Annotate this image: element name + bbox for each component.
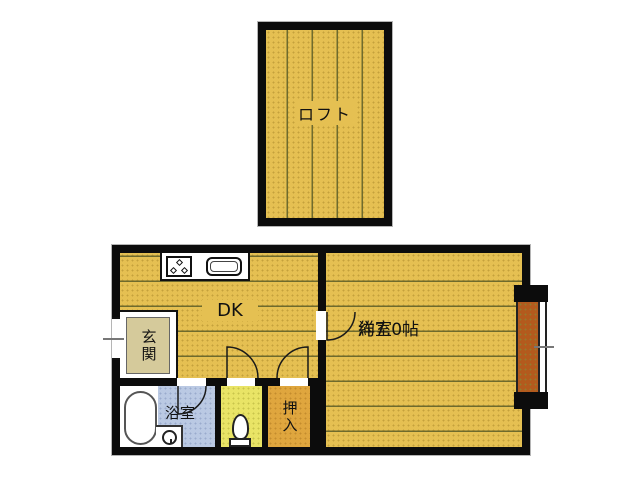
- bay-window-tick: [534, 346, 554, 348]
- loft-room: ロフト: [258, 22, 392, 226]
- main-floor: 玄関 浴室 押入: [112, 245, 530, 455]
- loft-label: ロフト: [295, 101, 355, 125]
- doorway-dk-western: [316, 311, 326, 340]
- stove-icon: [166, 256, 192, 277]
- western-room-floor: [326, 253, 522, 447]
- doorway-toilet: [227, 378, 255, 386]
- wall-dk-western: [318, 253, 326, 447]
- wall-closet-western: [310, 386, 318, 447]
- washer-pan: [156, 425, 183, 447]
- entry-door-tick: [103, 338, 124, 340]
- drain-icon: [162, 430, 177, 445]
- burner-icon: [170, 267, 177, 274]
- drain-slit: [170, 439, 172, 444]
- toilet-icon: [232, 414, 249, 440]
- toilet-tank: [229, 438, 251, 447]
- kitchen-counter: [160, 253, 250, 281]
- sink-icon: [206, 257, 242, 276]
- bay-wall-top: [514, 285, 548, 302]
- bathroom-label: 浴室: [165, 402, 195, 423]
- entrance-area: 玄関: [120, 310, 178, 378]
- floor-plan-canvas: ロフト 玄関: [0, 0, 640, 480]
- burner-icon: [181, 267, 188, 274]
- closet-room: 押入: [268, 386, 310, 447]
- doorway-bathroom: [177, 378, 206, 386]
- doorway-closet: [280, 378, 308, 386]
- entrance-label: 玄関: [141, 329, 156, 363]
- bathtub-icon: [124, 391, 157, 445]
- sink-basin: [210, 261, 238, 272]
- closet-label: 押入: [282, 400, 297, 434]
- burner-icon: [176, 259, 183, 266]
- bay-wall-bottom: [514, 392, 548, 409]
- dk-label: DK: [202, 300, 258, 321]
- entrance-mat: 玄関: [126, 317, 170, 374]
- western-room-size: 約7.0帖: [358, 319, 419, 342]
